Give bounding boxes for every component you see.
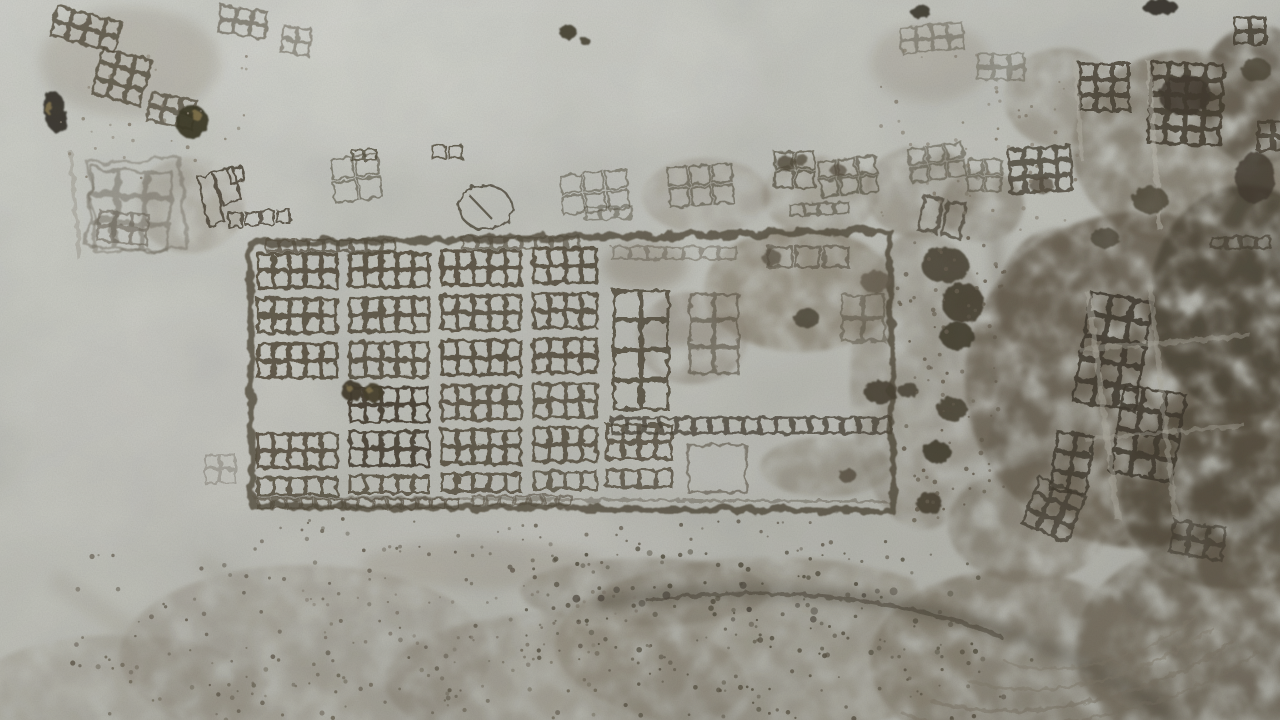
site-photo-canvas bbox=[0, 0, 1280, 720]
aerial-photo-snowy-excavation bbox=[0, 0, 1280, 720]
right-vignette bbox=[0, 0, 1280, 720]
